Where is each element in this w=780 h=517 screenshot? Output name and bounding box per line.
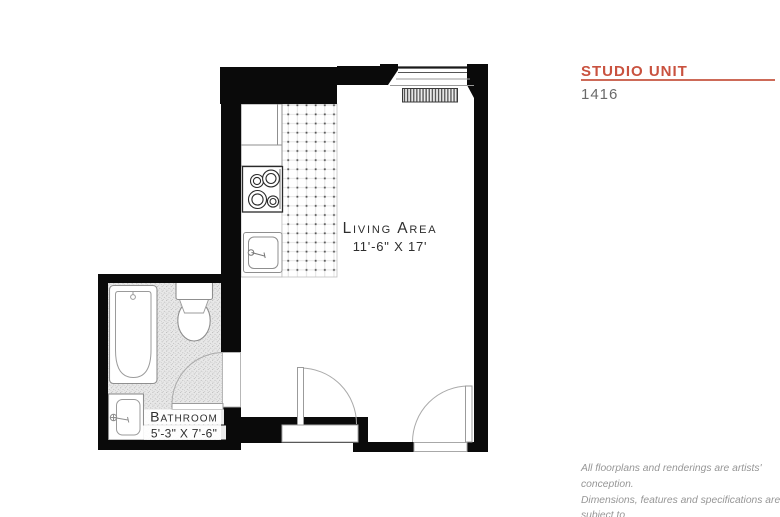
kitchen-tile-floor [282,104,337,277]
disclaimer-line: Dimensions, features and specifications … [581,493,780,517]
unit-number: 1416 [581,86,618,103]
floorplan-page: Living Area 11'-6" X 17' Bathroom 5'-3" … [0,0,780,517]
bathroom-sink [109,394,144,440]
bathroom-label: Bathroom [150,409,218,425]
tub-drain [131,295,136,300]
entry-door [413,386,473,452]
title-underline [581,79,775,81]
unit-type-title: STUDIO UNIT [581,63,688,80]
window [390,68,474,86]
interior-door-swing-arc [301,368,357,424]
entry-door-leaf [466,386,473,442]
interior-door-leaf [298,368,304,426]
bathroom-dimensions: 5'-3" X 7'-6" [151,427,217,441]
entry-door-threshold [414,443,467,452]
interior-door-threshold [282,425,358,442]
kitchen-sink [244,233,283,273]
toilet [176,281,213,341]
kitchen-cabinet [241,104,282,145]
interior-door [282,368,358,443]
radiator [403,89,458,103]
disclaimer-text: All floorplans and renderings are artist… [581,461,780,517]
stove [243,167,283,213]
entry-door-swing-arc [413,386,469,442]
living-area-label: Living Area [343,220,438,237]
bathtub [110,286,158,384]
kitchen-area [241,104,337,277]
living-area-dimensions: 11'-6" X 17' [353,239,428,254]
disclaimer-line: All floorplans and renderings are artist… [581,461,780,493]
kitchen-counter-section [241,145,282,166]
bathroom-door-threshold [223,353,241,408]
